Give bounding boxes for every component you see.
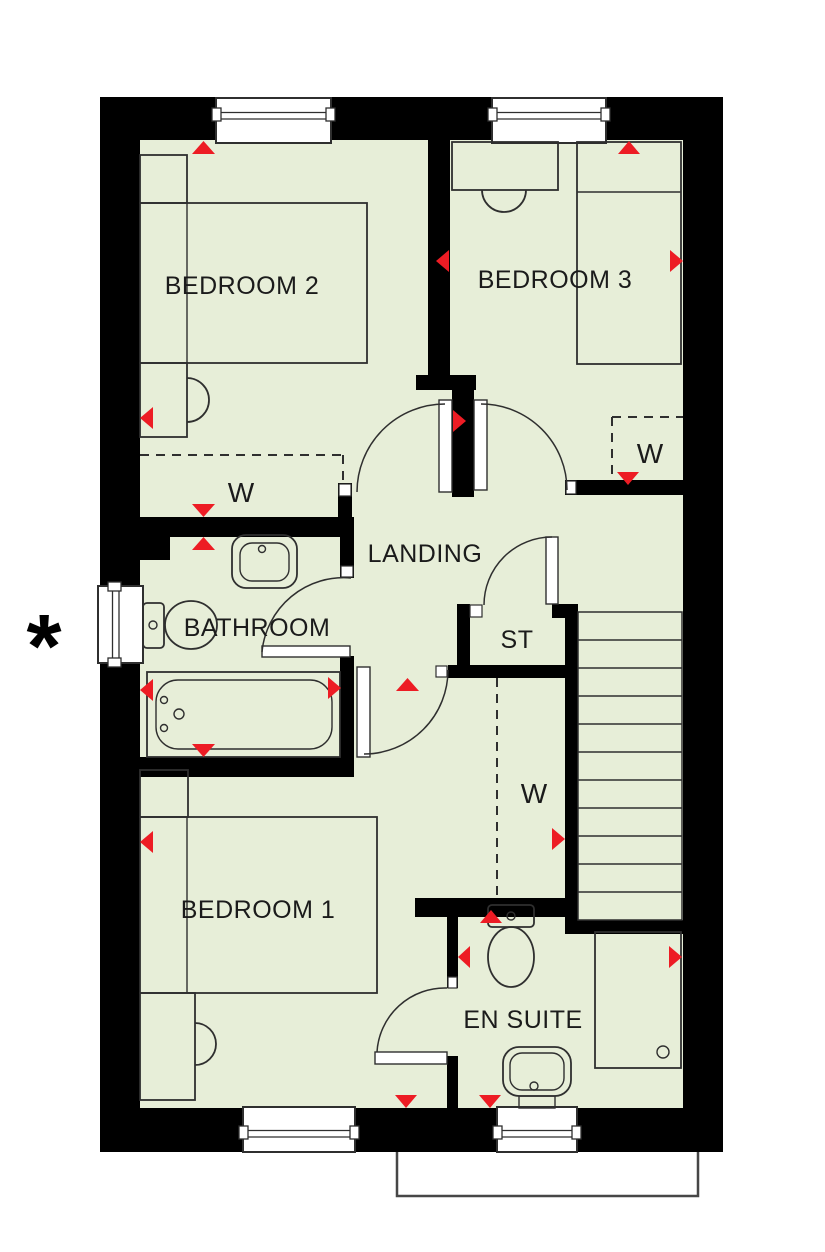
label-wardrobe-bedroom3: W xyxy=(637,438,664,469)
wall-ensuite-west-upper xyxy=(447,898,458,988)
wall-store-south xyxy=(448,665,578,678)
label-landing: LANDING xyxy=(368,540,483,568)
window-ensuite xyxy=(493,1107,581,1152)
floor-plan-drawing: BEDROOM 2 BEDROOM 3 LANDING BATHROOM ST … xyxy=(0,0,825,1252)
wall-door-stub xyxy=(452,390,474,497)
window-bedroom3 xyxy=(488,98,610,143)
wall-stairs-west xyxy=(565,604,578,934)
label-bedroom1: BEDROOM 1 xyxy=(181,896,336,924)
label-wardrobe-bedroom1: W xyxy=(521,778,548,809)
label-store: ST xyxy=(501,626,534,654)
wall-duct-block xyxy=(140,517,170,560)
label-ensuite: EN SUITE xyxy=(463,1006,582,1034)
label-bedroom2: BEDROOM 2 xyxy=(165,272,320,300)
label-bathroom: BATHROOM xyxy=(184,614,331,642)
window-bedroom1 xyxy=(239,1107,359,1152)
window-bedroom2 xyxy=(212,98,335,143)
floor-plan: BEDROOM 2 BEDROOM 3 LANDING BATHROOM ST … xyxy=(0,0,825,1252)
obscure-glazing-asterisk: * xyxy=(26,597,61,697)
wall-bedroom3-south xyxy=(565,480,683,495)
wall-store-west xyxy=(457,604,470,670)
ground-floor-outline xyxy=(397,1152,698,1196)
label-wardrobe-bedroom2: W xyxy=(228,477,255,508)
wall-ensuite-west-lower xyxy=(447,1056,458,1108)
label-bedroom3: BEDROOM 3 xyxy=(478,266,633,294)
wall-bathroom-south xyxy=(105,757,354,777)
wall-divider-jog xyxy=(416,375,476,390)
window-bathroom-obscure xyxy=(98,582,143,667)
